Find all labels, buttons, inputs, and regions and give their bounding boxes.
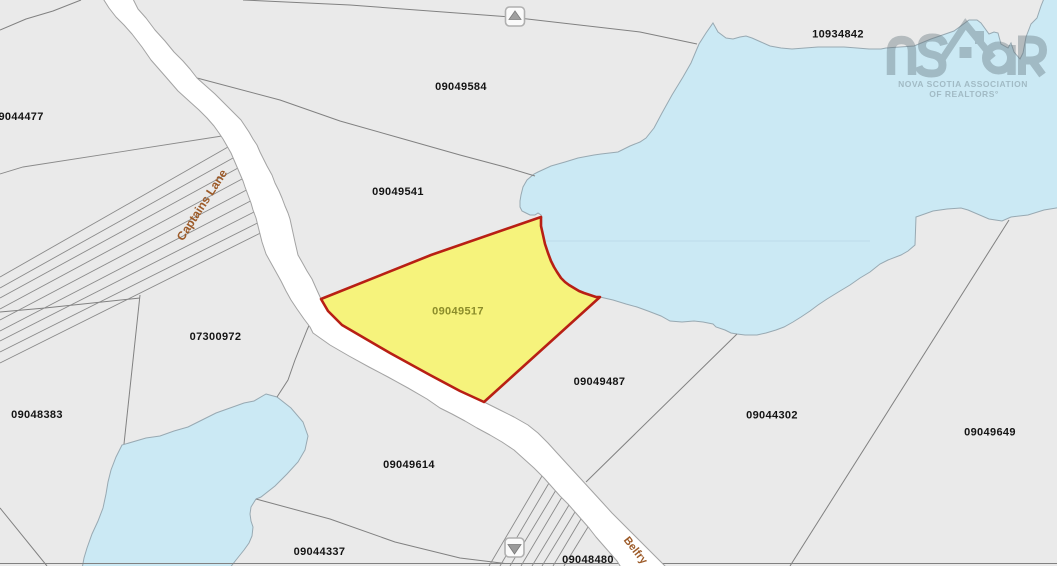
svg-text:NOVA SCOTIA ASSOCIATION: NOVA SCOTIA ASSOCIATION bbox=[898, 79, 1028, 89]
svg-text:09048480: 09048480 bbox=[562, 554, 614, 566]
svg-text:09049614: 09049614 bbox=[383, 459, 435, 471]
svg-text:09049487: 09049487 bbox=[574, 376, 626, 388]
svg-text:09044477: 09044477 bbox=[0, 111, 44, 123]
svg-text:10934842: 10934842 bbox=[812, 29, 864, 41]
svg-text:09044337: 09044337 bbox=[294, 546, 346, 558]
svg-text:09049584: 09049584 bbox=[435, 81, 487, 93]
svg-text:09049517: 09049517 bbox=[432, 306, 484, 318]
svg-text:09044302: 09044302 bbox=[746, 410, 798, 422]
svg-text:09049649: 09049649 bbox=[964, 427, 1016, 439]
svg-text:09048383: 09048383 bbox=[11, 409, 63, 421]
svg-text:OF REALTORS°: OF REALTORS° bbox=[929, 89, 999, 99]
svg-text:07300972: 07300972 bbox=[190, 331, 242, 343]
svg-text:09049541: 09049541 bbox=[372, 186, 424, 198]
